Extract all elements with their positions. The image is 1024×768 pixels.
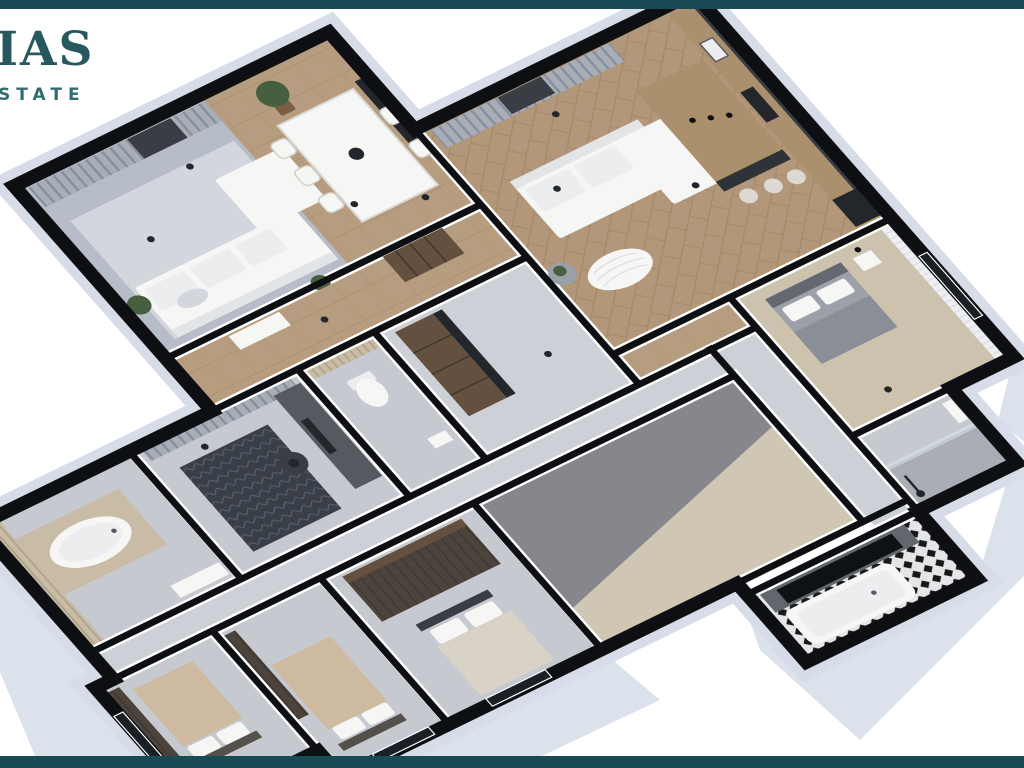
bottom-brand-strip xyxy=(0,756,1024,768)
logo-tagline: STATE xyxy=(0,87,94,104)
floorplan-3d-render xyxy=(0,0,1024,768)
agency-logo: IAS STATE xyxy=(0,26,94,104)
render-canvas: IAS STATE xyxy=(0,0,1024,768)
top-brand-strip xyxy=(0,0,1024,9)
logo-wordmark: IAS xyxy=(0,26,94,73)
